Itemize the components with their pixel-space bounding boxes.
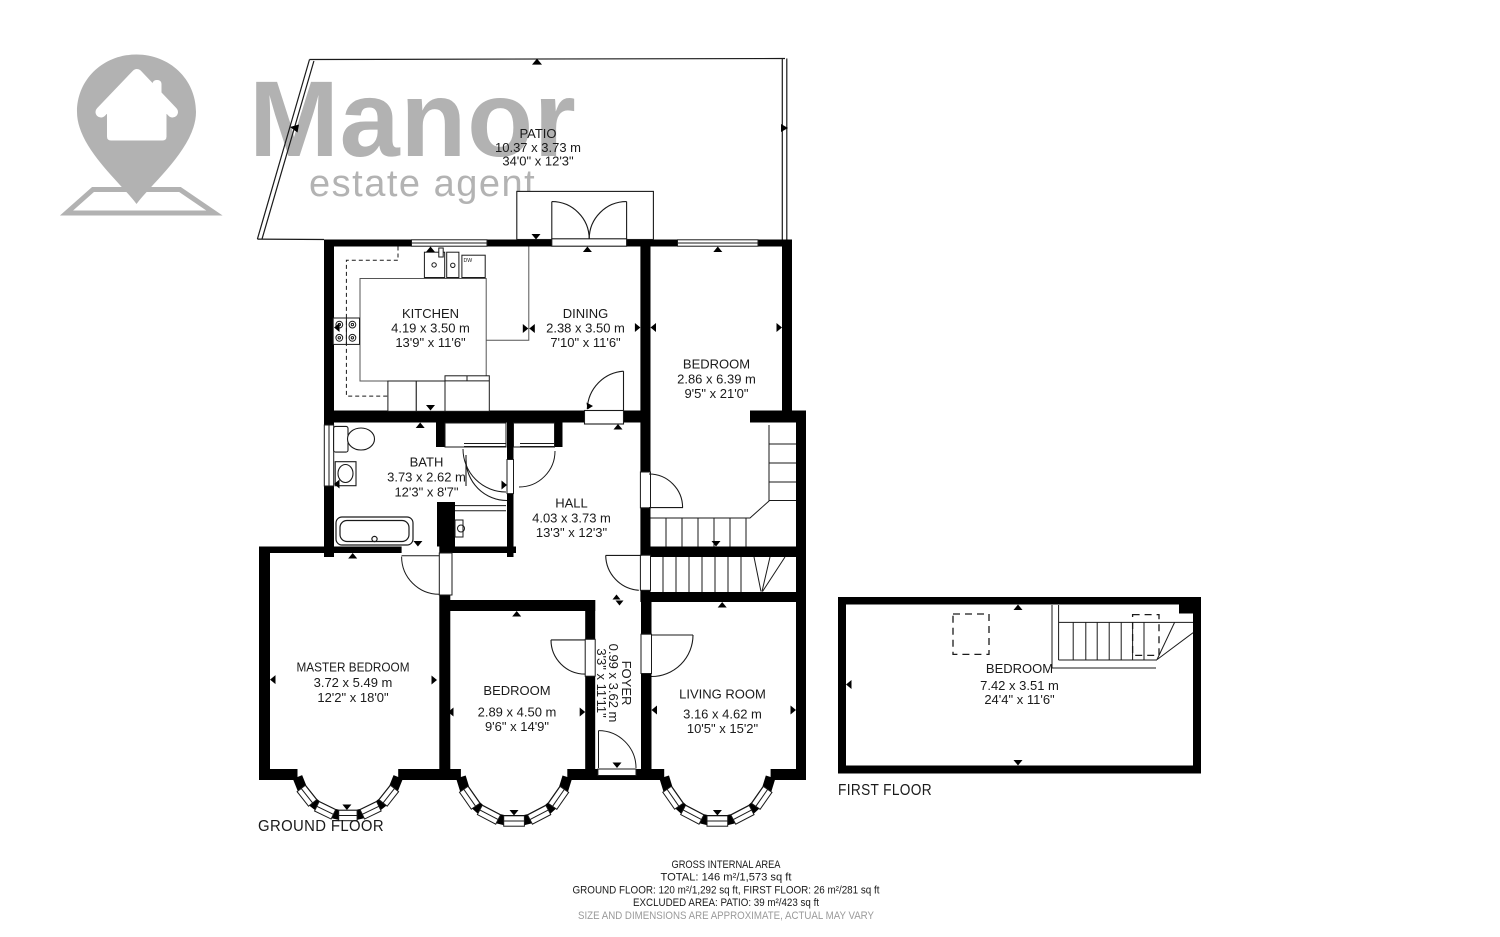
svg-text:3.73 x 2.62 m: 3.73 x 2.62 m [387,470,466,485]
svg-text:TOTAL: 146 m²/1,573 sq ft: TOTAL: 146 m²/1,573 sq ft [661,872,793,884]
svg-text:13'3" x 12'3": 13'3" x 12'3" [536,525,608,540]
svg-text:BEDROOM: BEDROOM [483,683,550,698]
svg-text:DW: DW [464,258,473,264]
svg-text:HALL: HALL [555,496,588,511]
svg-text:24'4" x 11'6": 24'4" x 11'6" [984,692,1055,707]
svg-text:estate agent: estate agent [309,163,536,205]
svg-text:2.86 x 6.39 m: 2.86 x 6.39 m [677,372,756,387]
svg-text:EXCLUDED AREA: PATIO: 39 m²/42: EXCLUDED AREA: PATIO: 39 m²/423 sq ft [633,897,820,909]
svg-text:PATIO: PATIO [519,126,556,141]
svg-text:7.42 x 3.51 m: 7.42 x 3.51 m [980,678,1059,693]
svg-text:34'0" x 12'3": 34'0" x 12'3" [502,154,574,169]
svg-text:GROSS INTERNAL AREA: GROSS INTERNAL AREA [672,859,781,871]
svg-text:12'2" x 18'0": 12'2" x 18'0" [317,690,389,705]
svg-text:10'5" x 15'2": 10'5" x 15'2" [687,721,759,736]
svg-text:9'6" x 14'9": 9'6" x 14'9" [485,719,549,734]
svg-text:BATH: BATH [410,455,444,470]
svg-text:GROUND FLOOR: GROUND FLOOR [258,818,384,835]
svg-text:4.19 x 3.50 m: 4.19 x 3.50 m [391,321,470,336]
svg-text:FIRST FLOOR: FIRST FLOOR [838,782,932,799]
svg-text:4.03 x 3.73 m: 4.03 x 3.73 m [532,511,611,526]
svg-text:BEDROOM: BEDROOM [683,357,750,372]
svg-text:MASTER BEDROOM: MASTER BEDROOM [297,660,410,675]
svg-text:12'3" x 8'7": 12'3" x 8'7" [394,485,458,500]
svg-text:2.89 x 4.50 m: 2.89 x 4.50 m [478,705,557,720]
svg-text:3.16 x 4.62 m: 3.16 x 4.62 m [683,707,762,722]
svg-text:SIZE AND DIMENSIONS ARE APPROX: SIZE AND DIMENSIONS ARE APPROXIMATE, ACT… [578,910,874,922]
svg-text:13'9" x 11'6": 13'9" x 11'6" [395,335,466,350]
svg-text:7'10" x 11'6": 7'10" x 11'6" [550,335,621,350]
svg-text:BEDROOM: BEDROOM [986,661,1053,676]
svg-text:3.72 x 5.49 m: 3.72 x 5.49 m [314,675,393,690]
svg-text:LIVING ROOM: LIVING ROOM [679,687,766,702]
svg-text:KITCHEN: KITCHEN [402,306,459,321]
svg-text:DINING: DINING [563,306,609,321]
svg-text:2.38 x 3.50 m: 2.38 x 3.50 m [546,321,625,336]
svg-text:9'5" x 21'0": 9'5" x 21'0" [684,386,748,401]
svg-text:3'3" x 11'11": 3'3" x 11'11" [594,648,609,718]
svg-text:GROUND FLOOR: 120 m²/1,292 sq: GROUND FLOOR: 120 m²/1,292 sq ft, FIRST … [573,884,881,896]
